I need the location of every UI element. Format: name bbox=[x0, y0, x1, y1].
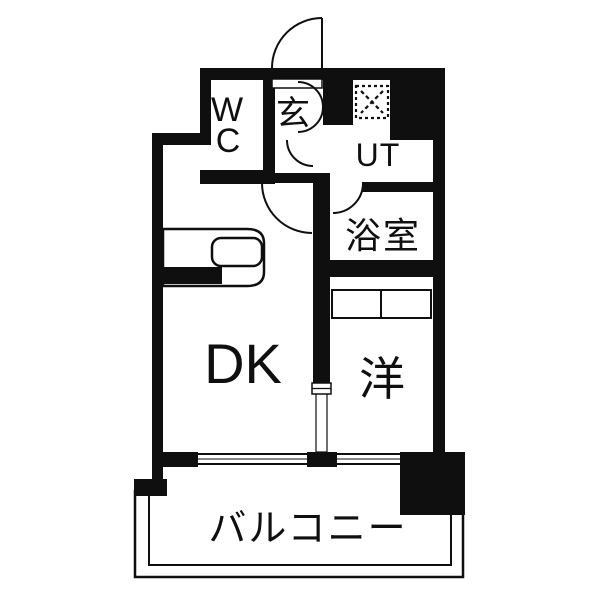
entry-threshold bbox=[272, 79, 322, 88]
washing-machine-pan-icon bbox=[356, 86, 388, 118]
bath-door-swing-arc bbox=[333, 183, 363, 213]
wall-left bbox=[152, 133, 163, 496]
closet bbox=[332, 290, 431, 318]
wall-bottom-left bbox=[152, 452, 198, 467]
room-labels: W C 玄 UT 浴室 DK 洋 バルコニー bbox=[204, 91, 421, 550]
wall-partition-upper bbox=[313, 173, 330, 385]
hall-door-swing-arc bbox=[287, 140, 313, 166]
sliding-door-channel bbox=[316, 385, 327, 452]
wall-entry-right-block bbox=[323, 68, 353, 125]
kitchen-sink bbox=[212, 238, 262, 266]
floor-plan-canvas: W C 玄 UT 浴室 DK 洋 バルコニー bbox=[0, 0, 600, 600]
bathroom-label: 浴室 bbox=[345, 215, 421, 256]
washer-pan-x-2 bbox=[361, 91, 383, 113]
entrance-label: 玄 bbox=[276, 95, 310, 133]
balcony-label: バルコニー bbox=[208, 508, 407, 550]
western-room-label: 洋 bbox=[359, 353, 405, 405]
wall-bath-bottom bbox=[315, 260, 433, 277]
dk-door-swing-arc bbox=[262, 183, 312, 233]
wall-balcony-left-stub bbox=[134, 479, 167, 496]
dining-kitchen-label: DK bbox=[204, 332, 282, 395]
balcony-windows bbox=[198, 454, 400, 464]
entry-door-swing-arc bbox=[272, 18, 322, 68]
wall-bottomright-block bbox=[400, 452, 465, 515]
wall-wc-left bbox=[200, 68, 211, 145]
dk-bedroom-sliding-door bbox=[312, 383, 331, 452]
kitchen-edge-bar bbox=[152, 267, 222, 284]
wall-hall-dk bbox=[260, 173, 315, 183]
wall-bottom-mid bbox=[307, 452, 337, 467]
wall-corridor-bath bbox=[362, 182, 433, 192]
utility-label: UT bbox=[356, 137, 401, 173]
wc-label-line2: C bbox=[216, 122, 241, 160]
floor-plan: W C 玄 UT 浴室 DK 洋 バルコニー bbox=[0, 0, 600, 600]
wall-right bbox=[433, 68, 445, 460]
entry-door bbox=[272, 18, 322, 68]
